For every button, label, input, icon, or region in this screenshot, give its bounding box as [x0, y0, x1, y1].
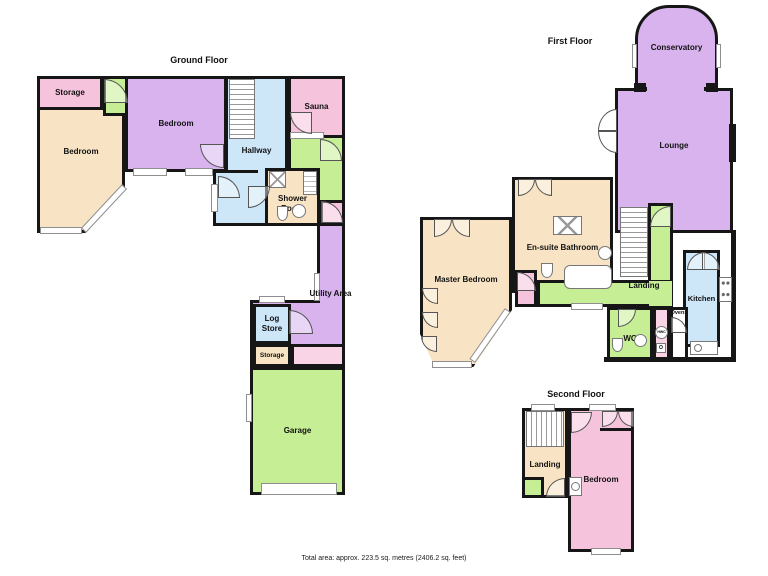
total-area-note: Total area: approx. 223.5 sq. metres (24… [0, 555, 768, 563]
ground-floor-title: Ground Floor [139, 55, 259, 66]
first-floor-title: First Floor [530, 36, 610, 47]
wall-patch [320, 300, 342, 308]
french-door-icon [598, 109, 617, 131]
room-label: Bedroom [158, 119, 193, 129]
french-door-icon [598, 131, 617, 153]
wall-segment [604, 357, 736, 362]
stairs-icon [620, 207, 648, 277]
window-icon [531, 404, 555, 411]
window-icon [716, 44, 721, 68]
window-icon [259, 296, 285, 303]
toilet-icon [277, 206, 288, 221]
hwc-label: HWC [657, 331, 665, 335]
wall-segment [706, 83, 718, 92]
closet-door-icon [421, 336, 437, 352]
window-icon [185, 168, 213, 176]
window-icon [432, 361, 472, 368]
window-icon [632, 44, 637, 68]
room-label: Kitchen [688, 294, 716, 303]
room-bedroom-left: Bedroom [37, 106, 125, 233]
window-icon [589, 404, 616, 411]
room-label: Hallway [242, 146, 272, 156]
room-label: Sauna [304, 102, 328, 112]
room-conservatory: Conservatory [635, 5, 718, 90]
wall-segment [600, 428, 633, 431]
sink-icon [634, 334, 647, 347]
room-label: En-suite Bathroom [527, 243, 599, 253]
oven-label: O [659, 346, 663, 351]
room-garage: Garage [250, 367, 345, 495]
wall-patch [647, 86, 704, 94]
sink-icon [694, 344, 702, 352]
sink-unit-icon [303, 171, 317, 195]
room-label-landing-first: Landing [620, 281, 668, 290]
toilet-icon [612, 338, 623, 352]
stairs-icon [526, 411, 564, 447]
room-label: Landing [529, 460, 560, 470]
window-icon [211, 184, 218, 212]
window-icon [246, 394, 252, 422]
room-label: Storage [260, 352, 284, 360]
stairs-icon [229, 79, 255, 139]
sink-icon [571, 482, 580, 491]
room-storage-mid: Storage [253, 344, 291, 367]
second-floor-title: Second Floor [516, 389, 636, 400]
room-label: Conservatory [651, 43, 703, 53]
room-label: Master Bedroom [434, 275, 497, 285]
wall-segment [634, 83, 646, 92]
room-pink-strip-ground [291, 344, 345, 367]
room-label-ovens: Ovens [666, 310, 692, 316]
hob-icon [719, 277, 732, 302]
oven-icon: O [656, 343, 666, 353]
window-icon [571, 303, 603, 310]
chimney-wall [729, 124, 736, 162]
window-icon [133, 168, 167, 176]
garage-door-icon [261, 483, 337, 495]
floorplan-canvas: Ground Floor Bedroom Storage Bedroom Hal… [0, 0, 768, 576]
wardrobe-icon [553, 216, 582, 235]
room-closet-second [522, 477, 544, 498]
room-label: Bedroom [63, 147, 98, 157]
room-log-store: Log Store [253, 304, 291, 344]
room-label: Storage [55, 88, 85, 98]
room-sauna: Sauna [288, 76, 345, 138]
sink-icon [292, 204, 306, 218]
bath-icon [564, 265, 612, 289]
window-icon [40, 227, 82, 234]
room-label: Lounge [660, 141, 689, 151]
room-storage-top: Storage [37, 76, 103, 110]
room-label: Bedroom [583, 475, 618, 485]
room-label: Log Store [256, 314, 288, 333]
shower-icon [269, 171, 286, 188]
room-label-utility: Utility Area [303, 289, 358, 298]
sink-icon [598, 246, 612, 260]
window-icon [591, 548, 621, 555]
hot-water-cylinder-icon: HWC [655, 326, 668, 339]
toilet-icon [541, 263, 553, 278]
room-label: Garage [284, 426, 312, 436]
